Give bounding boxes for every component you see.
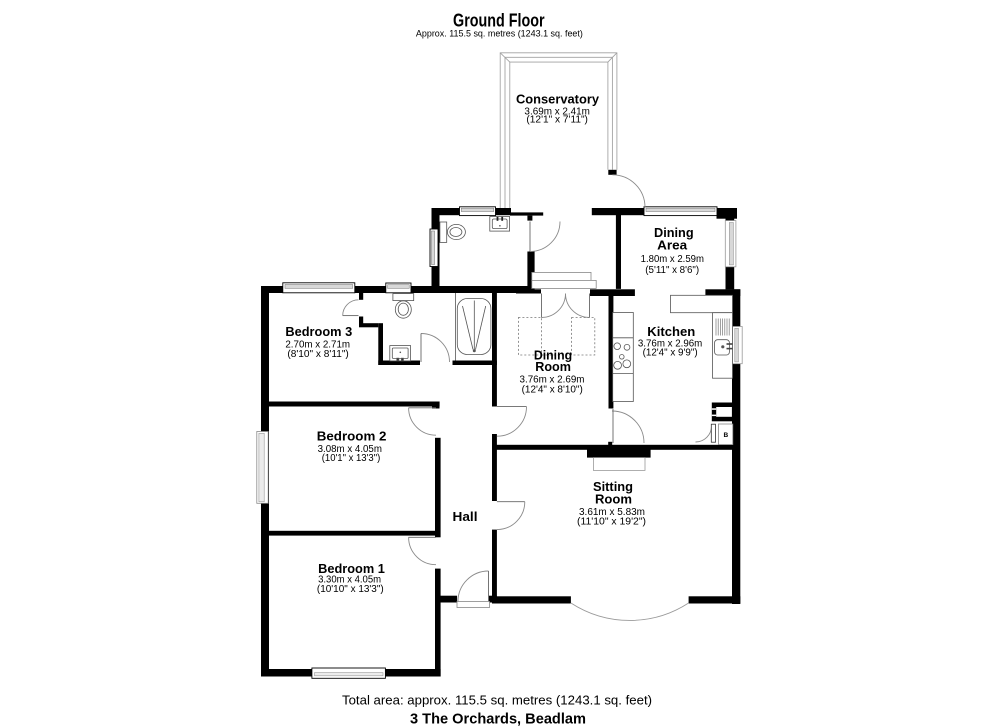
svg-text:(8'10" x 8'11"): (8'10" x 8'11") [287, 349, 348, 360]
svg-text:Hall: Hall [453, 510, 478, 524]
svg-text:Conservatory: Conservatory [516, 93, 599, 107]
svg-text:3 The Orchards, Beadlam: 3 The Orchards, Beadlam [410, 711, 586, 727]
svg-text:(12'1" x 7'11"): (12'1" x 7'11") [526, 115, 588, 126]
svg-text:(10'1" x 13'3"): (10'1" x 13'3") [322, 453, 381, 464]
svg-text:Total area: approx. 115.5 sq.: Total area: approx. 115.5 sq. metres (12… [342, 693, 652, 708]
svg-text:Area: Area [657, 239, 688, 253]
svg-text:(5'11" x 8'6"): (5'11" x 8'6") [645, 265, 699, 276]
svg-text:(12'4" x 8'10"): (12'4" x 8'10") [522, 384, 583, 395]
svg-text:Bedroom 2: Bedroom 2 [317, 430, 387, 444]
svg-text:1.80m x 2.59m: 1.80m x 2.59m [641, 254, 704, 265]
svg-text:Approx. 115.5 sq. metres (1243: Approx. 115.5 sq. metres (1243.1 sq. fee… [416, 28, 583, 38]
svg-text:(10'10" x 13'3"): (10'10" x 13'3") [317, 584, 384, 595]
svg-text:B: B [723, 432, 728, 439]
svg-text:Room: Room [535, 360, 571, 374]
svg-text:(12'4" x 9'9"): (12'4" x 9'9") [643, 348, 698, 359]
svg-text:Kitchen: Kitchen [647, 325, 695, 339]
svg-text:(11'10" x 19'2"): (11'10" x 19'2") [577, 517, 646, 528]
svg-text:Room: Room [595, 492, 632, 506]
svg-text:Bedroom 3: Bedroom 3 [285, 325, 352, 339]
